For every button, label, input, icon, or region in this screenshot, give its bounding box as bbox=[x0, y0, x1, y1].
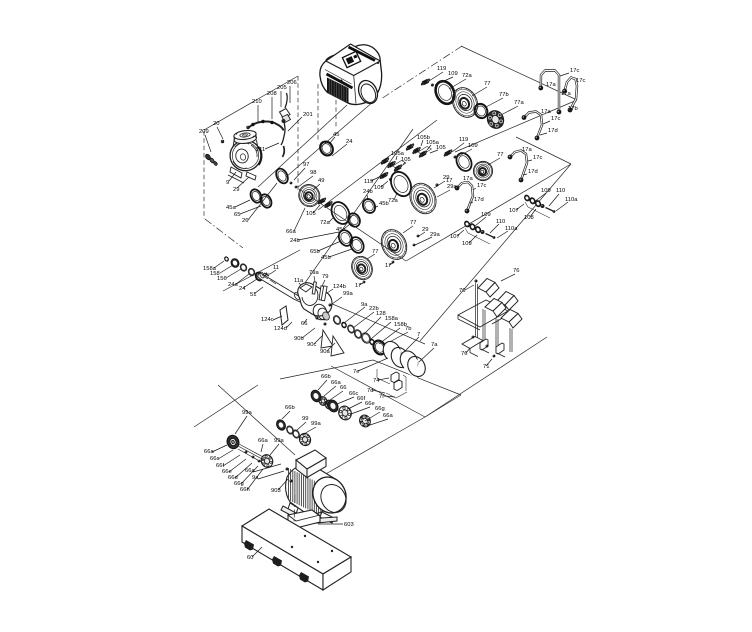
svg-text:9a: 9a bbox=[252, 475, 259, 481]
svg-text:119: 119 bbox=[459, 137, 468, 143]
svg-text:24b: 24b bbox=[363, 189, 373, 195]
svg-text:26: 26 bbox=[242, 218, 248, 224]
svg-text:211: 211 bbox=[256, 147, 265, 153]
svg-text:72a: 72a bbox=[320, 220, 330, 226]
svg-text:17: 17 bbox=[355, 283, 361, 289]
svg-text:77: 77 bbox=[410, 220, 416, 226]
svg-text:90a: 90a bbox=[320, 349, 330, 355]
svg-text:9: 9 bbox=[226, 180, 229, 186]
svg-text:77: 77 bbox=[372, 249, 378, 255]
svg-text:29a: 29a bbox=[430, 232, 440, 238]
svg-text:124d: 124d bbox=[274, 326, 287, 332]
svg-text:66a: 66a bbox=[286, 229, 296, 235]
svg-text:107: 107 bbox=[509, 208, 519, 214]
svg-text:11a: 11a bbox=[294, 278, 304, 284]
svg-text:109: 109 bbox=[462, 241, 472, 247]
svg-text:105: 105 bbox=[306, 211, 316, 217]
svg-text:20: 20 bbox=[213, 121, 219, 127]
svg-text:29: 29 bbox=[233, 187, 239, 193]
svg-text:119: 119 bbox=[437, 66, 446, 72]
svg-text:76: 76 bbox=[459, 288, 465, 294]
svg-text:17c: 17c bbox=[576, 78, 585, 84]
svg-text:109: 109 bbox=[448, 71, 458, 77]
svg-text:66g: 66g bbox=[375, 406, 385, 412]
svg-text:66h: 66h bbox=[240, 487, 250, 493]
svg-text:66a: 66a bbox=[258, 438, 268, 444]
svg-text:76: 76 bbox=[513, 268, 519, 274]
svg-text:45b: 45b bbox=[321, 255, 331, 261]
svg-text:17c: 17c bbox=[477, 183, 486, 189]
svg-text:7b: 7b bbox=[405, 326, 411, 332]
svg-text:17c: 17c bbox=[570, 68, 579, 74]
svg-text:201: 201 bbox=[303, 112, 313, 118]
svg-text:66c: 66c bbox=[210, 456, 219, 462]
svg-text:107: 107 bbox=[450, 234, 460, 240]
svg-text:17d: 17d bbox=[528, 169, 538, 175]
svg-text:99a: 99a bbox=[242, 410, 252, 416]
svg-text:105: 105 bbox=[436, 145, 446, 151]
svg-text:71: 71 bbox=[483, 364, 489, 370]
svg-text:17d: 17d bbox=[548, 128, 558, 134]
svg-text:99a: 99a bbox=[311, 421, 321, 427]
svg-text:7a: 7a bbox=[431, 342, 438, 348]
svg-text:7: 7 bbox=[417, 332, 420, 338]
svg-text:124c: 124c bbox=[261, 317, 274, 323]
svg-text:24: 24 bbox=[346, 139, 353, 145]
svg-text:98: 98 bbox=[310, 170, 316, 176]
svg-text:66b: 66b bbox=[321, 374, 331, 380]
svg-text:90b: 90b bbox=[294, 336, 304, 342]
svg-text:66: 66 bbox=[340, 385, 346, 391]
svg-text:124b: 124b bbox=[333, 284, 346, 290]
svg-text:45a: 45a bbox=[226, 205, 236, 211]
svg-text:17a: 17a bbox=[546, 82, 556, 88]
svg-text:110: 110 bbox=[496, 219, 505, 225]
svg-text:17a: 17a bbox=[463, 176, 473, 182]
svg-text:72a: 72a bbox=[462, 73, 472, 79]
svg-text:76: 76 bbox=[461, 351, 467, 357]
svg-text:110a: 110a bbox=[565, 197, 578, 203]
svg-text:29: 29 bbox=[443, 175, 449, 181]
svg-text:17a: 17a bbox=[541, 109, 551, 115]
svg-text:156: 156 bbox=[217, 276, 227, 282]
svg-text:7e: 7e bbox=[353, 369, 359, 375]
svg-text:45: 45 bbox=[333, 132, 339, 138]
svg-text:79a: 79a bbox=[309, 270, 319, 276]
svg-text:79: 79 bbox=[322, 274, 328, 280]
svg-text:66b: 66b bbox=[285, 405, 295, 411]
svg-text:66e: 66e bbox=[365, 401, 375, 407]
svg-text:603: 603 bbox=[344, 522, 354, 528]
svg-text:24b: 24b bbox=[290, 238, 300, 244]
svg-text:206: 206 bbox=[287, 80, 297, 86]
svg-text:109: 109 bbox=[481, 212, 491, 218]
svg-text:65: 65 bbox=[234, 212, 240, 218]
svg-text:49: 49 bbox=[318, 178, 324, 184]
svg-text:109: 109 bbox=[541, 188, 551, 194]
svg-text:7d: 7d bbox=[367, 388, 373, 394]
svg-text:99a: 99a bbox=[274, 438, 284, 444]
svg-text:119: 119 bbox=[364, 179, 373, 185]
svg-text:109: 109 bbox=[374, 185, 384, 191]
svg-text:110a: 110a bbox=[505, 226, 518, 232]
svg-text:77a: 77a bbox=[514, 100, 524, 106]
svg-text:17a: 17a bbox=[522, 147, 532, 153]
svg-text:17: 17 bbox=[385, 263, 391, 269]
svg-text:11: 11 bbox=[273, 265, 279, 271]
svg-text:903: 903 bbox=[271, 488, 281, 494]
svg-text:77: 77 bbox=[484, 81, 490, 87]
svg-text:24a: 24a bbox=[228, 282, 238, 288]
svg-text:60: 60 bbox=[247, 555, 253, 561]
svg-text:17a: 17a bbox=[561, 91, 571, 97]
svg-text:66a: 66a bbox=[383, 413, 393, 419]
svg-text:51: 51 bbox=[250, 292, 256, 298]
svg-text:66: 66 bbox=[301, 321, 307, 327]
svg-text:77b: 77b bbox=[499, 92, 509, 98]
svg-text:66a: 66a bbox=[245, 468, 255, 474]
svg-text:97: 97 bbox=[303, 162, 309, 168]
svg-text:29: 29 bbox=[422, 227, 428, 233]
svg-text:208: 208 bbox=[267, 91, 277, 97]
svg-text:210: 210 bbox=[252, 99, 262, 105]
svg-text:66a: 66a bbox=[204, 449, 214, 455]
svg-text:77: 77 bbox=[497, 152, 503, 158]
svg-text:105: 105 bbox=[401, 157, 411, 163]
svg-text:72a: 72a bbox=[388, 198, 398, 204]
svg-text:17b: 17b bbox=[568, 106, 578, 112]
svg-text:99a: 99a bbox=[343, 291, 353, 297]
svg-text:90c: 90c bbox=[307, 342, 316, 348]
svg-text:17d: 17d bbox=[474, 197, 484, 203]
svg-text:109: 109 bbox=[468, 143, 478, 149]
svg-text:205: 205 bbox=[277, 85, 287, 91]
svg-text:99: 99 bbox=[302, 416, 308, 422]
svg-text:17c: 17c bbox=[533, 155, 542, 161]
svg-text:65b: 65b bbox=[310, 249, 320, 255]
svg-text:24: 24 bbox=[239, 286, 246, 292]
svg-text:108: 108 bbox=[524, 215, 534, 221]
svg-text:7f: 7f bbox=[379, 394, 384, 400]
svg-text:74: 74 bbox=[373, 378, 380, 384]
svg-text:110: 110 bbox=[556, 188, 565, 194]
svg-text:209: 209 bbox=[199, 129, 209, 135]
svg-text:17c: 17c bbox=[551, 116, 560, 122]
svg-text:29a: 29a bbox=[447, 184, 457, 190]
svg-text:9a: 9a bbox=[361, 302, 368, 308]
